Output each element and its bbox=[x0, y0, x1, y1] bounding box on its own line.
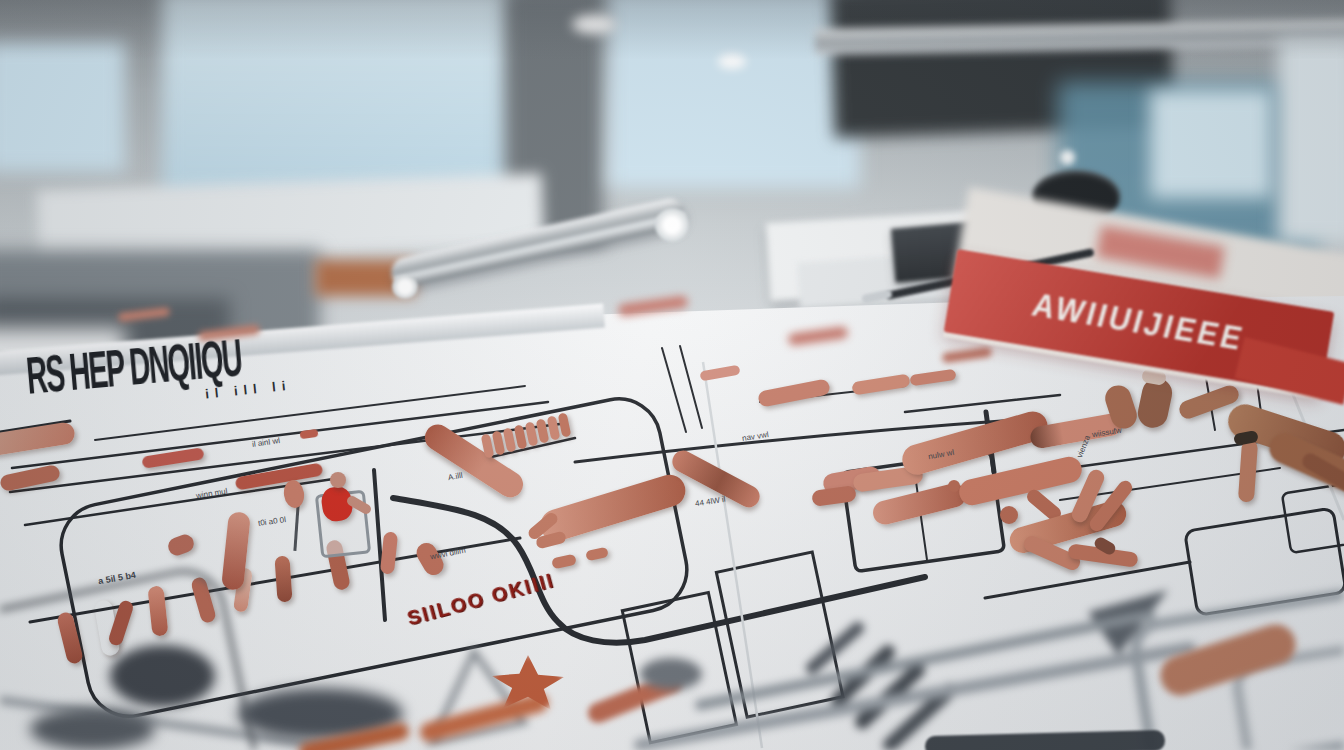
scene-photo: IIII II bbox=[0, 0, 1344, 750]
foreground-marks bbox=[0, 564, 1344, 750]
foreground-blur-shapes bbox=[0, 0, 1344, 750]
